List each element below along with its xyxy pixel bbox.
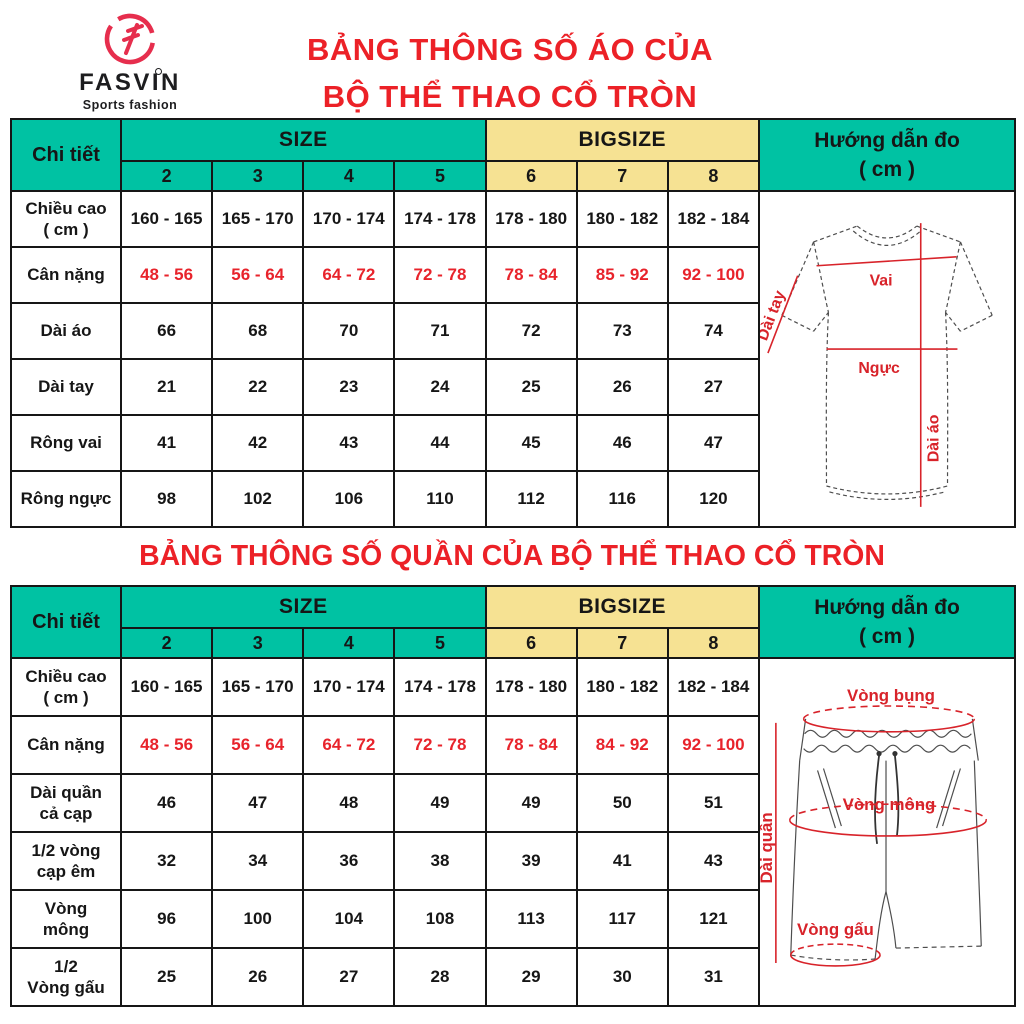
shirt-size-col-5: 5	[395, 162, 486, 192]
table-cell: 100	[213, 891, 304, 949]
table-cell: 113	[487, 891, 578, 949]
pants-guide-header: Hướng dẫn đo ( cm )	[760, 587, 1016, 659]
table-cell: 92 - 100	[669, 717, 760, 775]
row-label: Dài áo	[12, 304, 122, 360]
table-cell: 39	[487, 833, 578, 891]
table-cell: 117	[578, 891, 669, 949]
waist-measure-ellipse	[804, 706, 975, 719]
pants-size-col-6: 6	[487, 629, 578, 659]
row-label: Chiều cao ( cm )	[12, 659, 122, 717]
table-cell: 160 - 165	[122, 192, 213, 248]
table-cell: 48 - 56	[122, 248, 213, 304]
table-cell: 24	[395, 360, 486, 416]
row-label: Dài tay	[12, 360, 122, 416]
table-cell: 49	[487, 775, 578, 833]
hem-label: Vòng gấu	[797, 920, 874, 939]
pants-detail-header: Chi tiết	[12, 587, 122, 659]
table-cell: 23	[304, 360, 395, 416]
table-cell: 22	[213, 360, 304, 416]
table-cell: 21	[122, 360, 213, 416]
pants-size-col-7: 7	[578, 629, 669, 659]
table-cell: 56 - 64	[213, 717, 304, 775]
table-cell: 43	[669, 833, 760, 891]
table-cell: 36	[304, 833, 395, 891]
table-cell: 106	[304, 472, 395, 528]
row-label: Chiều cao ( cm )	[12, 192, 122, 248]
waist-label: Vòng bụng	[847, 686, 935, 705]
table-cell: 98	[122, 472, 213, 528]
table-cell: 31	[669, 949, 760, 1007]
table-cell: 41	[122, 416, 213, 472]
table-cell: 32	[122, 833, 213, 891]
brand-tagline: Sports fashion	[55, 98, 205, 112]
table-cell: 180 - 182	[578, 659, 669, 717]
table-cell: 85 - 92	[578, 248, 669, 304]
pants-table-title: BẢNG THÔNG SỐ QUẦN CỦA BỘ THỂ THAO CỔ TR…	[10, 540, 1014, 573]
row-label: 1/2 vòng cạp êm	[12, 833, 122, 891]
shirt-measure-diagram: Vai Ngực Dài áo Dài tay	[760, 192, 1016, 528]
table-cell: 64 - 72	[304, 717, 395, 775]
table-cell: 180 - 182	[578, 192, 669, 248]
pants-size-table: Chi tiết SIZE BIGSIZE Hướng dẫn đo ( cm …	[10, 585, 1016, 1007]
table-cell: 72 - 78	[395, 717, 486, 775]
row-label: Cân nặng	[12, 248, 122, 304]
shoulder-measure-line	[817, 257, 957, 266]
table-cell: 73	[578, 304, 669, 360]
table-cell: 25	[487, 360, 578, 416]
table-cell: 28	[395, 949, 486, 1007]
pants-length-label: Dài quần	[760, 812, 776, 883]
table-cell: 48	[304, 775, 395, 833]
table-cell: 108	[395, 891, 486, 949]
table-cell: 25	[122, 949, 213, 1007]
row-label: Dài quần cả cạp	[12, 775, 122, 833]
table-cell: 96	[122, 891, 213, 949]
table-cell: 84 - 92	[578, 717, 669, 775]
table-cell: 165 - 170	[213, 192, 304, 248]
hip-label: Vòng mông	[843, 795, 936, 814]
shirt-bigsize-header: BIGSIZE	[487, 120, 760, 162]
table-cell: 45	[487, 416, 578, 472]
table-cell: 43	[304, 416, 395, 472]
shirt-size-col-4: 4	[304, 162, 395, 192]
fasvin-f-circle-icon	[103, 12, 157, 66]
pants-measure-diagram: Vòng bụng Vòng mông Vòng gấu Dài quần	[760, 659, 1016, 1007]
shirt-size-col-6: 6	[487, 162, 578, 192]
table-cell: 112	[487, 472, 578, 528]
pants-size-col-3: 3	[213, 629, 304, 659]
shoulder-label: Vai	[870, 273, 893, 290]
table-cell: 174 - 178	[395, 192, 486, 248]
shirt-guide-header: Hướng dẫn đo ( cm )	[760, 120, 1016, 192]
shirt-detail-header: Chi tiết	[12, 120, 122, 192]
shirt-size-col-8: 8	[669, 162, 760, 192]
table-cell: 27	[304, 949, 395, 1007]
shirt-table-title: BẢNG THÔNG SỐ ÁO CỦA BỘ THỂ THAO CỔ TRÒN	[250, 26, 770, 120]
table-cell: 64 - 72	[304, 248, 395, 304]
shirt-size-col-3: 3	[213, 162, 304, 192]
chest-label: Ngực	[858, 360, 900, 377]
table-cell: 120	[669, 472, 760, 528]
row-label: Vòng mông	[12, 891, 122, 949]
table-cell: 56 - 64	[213, 248, 304, 304]
brand-logo: FASVIN Sports fashion	[55, 12, 205, 112]
shorts-diagram-icon: Vòng bụng Vòng mông Vòng gấu Dài quần	[760, 659, 1014, 1005]
table-cell: 72 - 78	[395, 248, 486, 304]
table-cell: 47	[213, 775, 304, 833]
pants-size-col-2: 2	[122, 629, 213, 659]
table-cell: 70	[304, 304, 395, 360]
shirt-size-header: SIZE	[122, 120, 487, 162]
shirt-size-table: Chi tiết SIZE BIGSIZE Hướng dẫn đo ( cm …	[10, 118, 1016, 528]
table-cell: 104	[304, 891, 395, 949]
table-cell: 34	[213, 833, 304, 891]
row-label: Cân nặng	[12, 717, 122, 775]
table-cell: 78 - 84	[487, 248, 578, 304]
shirt-length-label: Dài áo	[926, 414, 943, 462]
table-cell: 165 - 170	[213, 659, 304, 717]
shirt-size-col-2: 2	[122, 162, 213, 192]
table-cell: 92 - 100	[669, 248, 760, 304]
row-label: 1/2 Vòng gấu	[12, 949, 122, 1007]
table-cell: 68	[213, 304, 304, 360]
table-cell: 178 - 180	[487, 192, 578, 248]
row-label: Rông vai	[12, 416, 122, 472]
tshirt-diagram-icon: Vai Ngực Dài áo Dài tay	[760, 192, 1014, 526]
table-cell: 178 - 180	[487, 659, 578, 717]
size-chart-infographic: FASVIN Sports fashion BẢNG THÔNG SỐ ÁO C…	[0, 0, 1024, 1024]
table-cell: 26	[213, 949, 304, 1007]
table-cell: 26	[578, 360, 669, 416]
table-cell: 46	[578, 416, 669, 472]
table-cell: 30	[578, 949, 669, 1007]
table-cell: 49	[395, 775, 486, 833]
table-cell: 71	[395, 304, 486, 360]
table-cell: 116	[578, 472, 669, 528]
table-cell: 66	[122, 304, 213, 360]
table-cell: 160 - 165	[122, 659, 213, 717]
table-cell: 44	[395, 416, 486, 472]
table-cell: 47	[669, 416, 760, 472]
table-cell: 27	[669, 360, 760, 416]
table-cell: 174 - 178	[395, 659, 486, 717]
pants-size-col-8: 8	[669, 629, 760, 659]
table-cell: 38	[395, 833, 486, 891]
hem-measure-ellipse	[791, 944, 880, 955]
table-cell: 182 - 184	[669, 192, 760, 248]
table-cell: 110	[395, 472, 486, 528]
table-cell: 46	[122, 775, 213, 833]
pants-bigsize-header: BIGSIZE	[487, 587, 760, 629]
shirt-title-line1: BẢNG THÔNG SỐ ÁO CỦA	[250, 26, 770, 73]
table-cell: 48 - 56	[122, 717, 213, 775]
pants-size-header: SIZE	[122, 587, 487, 629]
pants-size-col-4: 4	[304, 629, 395, 659]
table-cell: 29	[487, 949, 578, 1007]
row-label: Rông ngực	[12, 472, 122, 528]
table-cell: 182 - 184	[669, 659, 760, 717]
table-cell: 51	[669, 775, 760, 833]
table-cell: 170 - 174	[304, 659, 395, 717]
table-cell: 50	[578, 775, 669, 833]
brand-name: FASVIN	[55, 70, 205, 95]
table-cell: 121	[669, 891, 760, 949]
shirt-size-col-7: 7	[578, 162, 669, 192]
table-cell: 74	[669, 304, 760, 360]
brand-i-ring-mark	[155, 68, 162, 75]
table-cell: 78 - 84	[487, 717, 578, 775]
table-cell: 102	[213, 472, 304, 528]
table-cell: 72	[487, 304, 578, 360]
table-cell: 41	[578, 833, 669, 891]
table-cell: 42	[213, 416, 304, 472]
table-cell: 170 - 174	[304, 192, 395, 248]
shirt-title-line2: BỘ THỂ THAO CỔ TRÒN	[250, 73, 770, 120]
pants-size-col-5: 5	[395, 629, 486, 659]
